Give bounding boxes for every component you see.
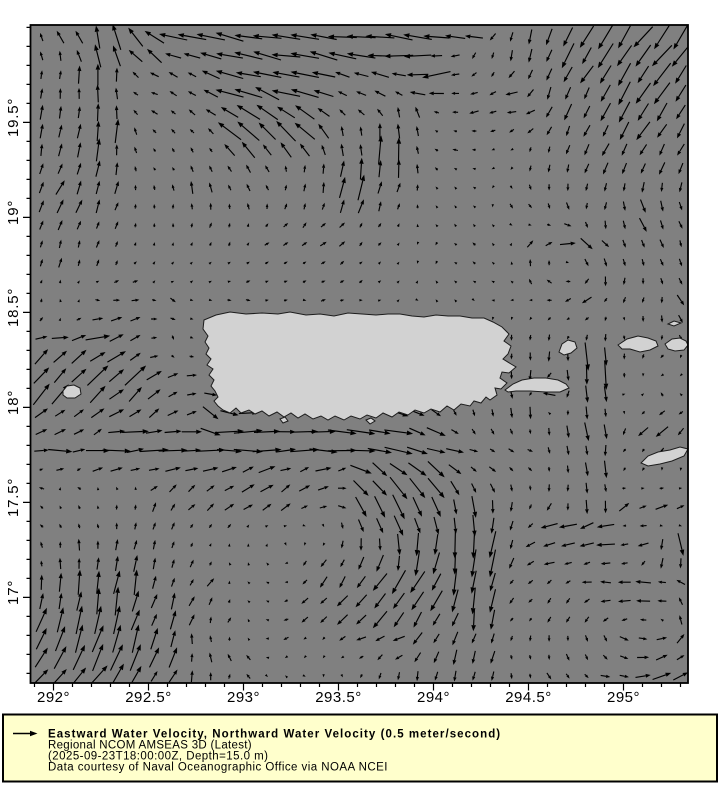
svg-text:18.5°: 18.5°: [5, 288, 22, 327]
svg-text:19°: 19°: [5, 200, 22, 225]
svg-text:292.5°: 292.5°: [125, 689, 172, 706]
svg-text:294.5°: 294.5°: [505, 689, 552, 706]
svg-text:19.5°: 19.5°: [5, 98, 22, 137]
svg-text:294°: 294°: [417, 689, 450, 706]
svg-text:293°: 293°: [227, 689, 260, 706]
svg-text:17.5°: 17.5°: [5, 478, 22, 517]
svg-text:292°: 292°: [37, 689, 70, 706]
svg-text:293.5°: 293.5°: [315, 689, 362, 706]
svg-text:18°: 18°: [5, 390, 22, 415]
svg-text:17°: 17°: [5, 580, 22, 605]
svg-text:Data courtesy of Naval Oceanog: Data courtesy of Naval Oceanographic Off…: [48, 762, 388, 774]
svg-text:295°: 295°: [607, 689, 640, 706]
